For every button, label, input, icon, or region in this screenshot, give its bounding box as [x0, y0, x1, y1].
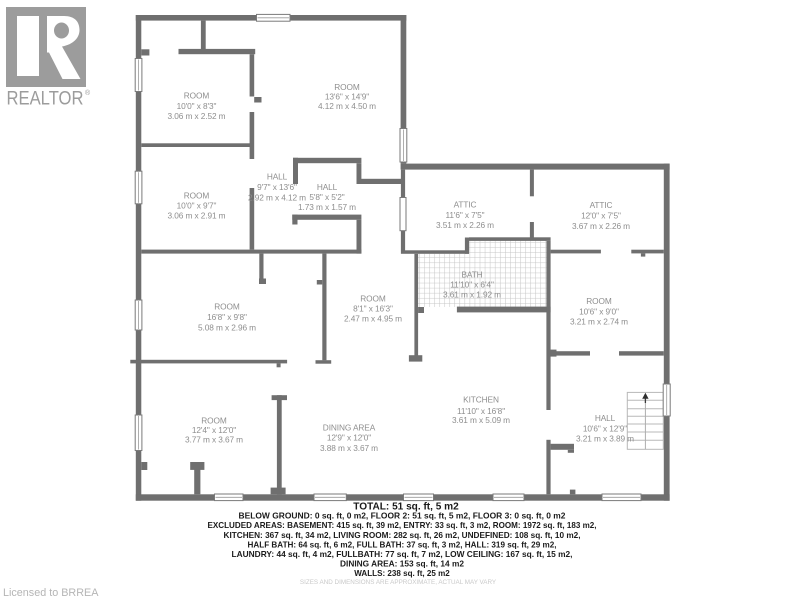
svg-text:ROOM: ROOM: [586, 296, 612, 306]
svg-text:12'4" x 12'0": 12'4" x 12'0": [192, 425, 236, 435]
svg-text:ROOM: ROOM: [360, 294, 386, 304]
svg-text:ROOM: ROOM: [184, 91, 210, 101]
svg-text:KITCHEN: KITCHEN: [463, 395, 499, 405]
svg-text:10'6" x 12'9": 10'6" x 12'9": [583, 424, 627, 434]
svg-text:13'6" x 14'9": 13'6" x 14'9": [325, 92, 369, 102]
svg-text:16'8" x 9'8": 16'8" x 9'8": [207, 312, 247, 322]
svg-text:5'8" x 5'2": 5'8" x 5'2": [309, 192, 344, 202]
svg-text:BATH: BATH: [461, 270, 482, 280]
svg-text:HALF BATH: 64 sq. ft, 6 m2, FU: HALF BATH: 64 sq. ft, 6 m2, FULL BATH: 3…: [248, 539, 557, 549]
svg-text:5.08 m x 2.96 m: 5.08 m x 2.96 m: [198, 323, 256, 333]
svg-text:8'1" x 16'3": 8'1" x 16'3": [353, 304, 393, 314]
svg-text:10'0" x 8'3": 10'0" x 8'3": [177, 101, 217, 111]
svg-text:4.12 m x 4.50 m: 4.12 m x 4.50 m: [318, 101, 376, 111]
svg-text:HALL: HALL: [595, 413, 616, 423]
svg-text:10'6" x 9'0": 10'6" x 9'0": [579, 307, 619, 317]
svg-text:DINING AREA: 153 sq. ft, 14 m2: DINING AREA: 153 sq. ft, 14 m2: [340, 559, 464, 569]
svg-text:EXCLUDED AREAS: BASEMENT: 415: EXCLUDED AREAS: BASEMENT: 415 sq. ft, 39…: [208, 520, 597, 530]
svg-text:SIZES AND DIMENSIONS ARE APPRO: SIZES AND DIMENSIONS ARE APPROXIMATE, AC…: [300, 579, 497, 586]
svg-text:3.77 m x 3.67 m: 3.77 m x 3.67 m: [185, 435, 243, 445]
svg-text:3.06 m x 2.52 m: 3.06 m x 2.52 m: [168, 111, 226, 121]
svg-text:DINING AREA: DINING AREA: [323, 423, 376, 433]
svg-text:ROOM: ROOM: [334, 82, 360, 92]
svg-text:3.51 m x 2.26 m: 3.51 m x 2.26 m: [436, 220, 494, 230]
svg-text:3.06 m x 2.91 m: 3.06 m x 2.91 m: [168, 211, 226, 221]
svg-text:1.73 m x 1.57 m: 1.73 m x 1.57 m: [298, 202, 356, 212]
svg-text:KITCHEN: 367 sq. ft, 34 m2, LI: KITCHEN: 367 sq. ft, 34 m2, LIVING ROOM:…: [224, 530, 581, 540]
svg-text:LAUNDRY: 44 sq. ft, 4 m2, FULL: LAUNDRY: 44 sq. ft, 4 m2, FULLBATH: 77 s…: [232, 549, 573, 559]
svg-text:10'0" x 9'7": 10'0" x 9'7": [177, 201, 217, 211]
svg-text:ATTIC: ATTIC: [590, 200, 613, 210]
svg-text:ROOM: ROOM: [184, 191, 210, 201]
svg-text:3.61 m x 1.92 m: 3.61 m x 1.92 m: [443, 290, 501, 300]
svg-text:11'6" x 7'5": 11'6" x 7'5": [445, 210, 484, 220]
svg-text:BELOW GROUND: 0 sq. ft, 0 m2,: BELOW GROUND: 0 sq. ft, 0 m2, FLOOR 2: 5…: [239, 511, 566, 521]
svg-text:ROOM: ROOM: [201, 416, 227, 426]
svg-text:2.92 m x 4.12 m: 2.92 m x 4.12 m: [248, 193, 306, 203]
svg-text:®: ®: [85, 89, 91, 97]
svg-text:HALL: HALL: [317, 182, 338, 192]
svg-text:3.21 m x 3.89 m: 3.21 m x 3.89 m: [576, 434, 634, 444]
svg-text:3.21 m x 2.74 m: 3.21 m x 2.74 m: [570, 317, 628, 327]
svg-text:HALL: HALL: [267, 172, 288, 182]
svg-text:12'9" x 12'0": 12'9" x 12'0": [327, 433, 371, 443]
svg-text:WALLS: 238 sq. ft, 25 m2: WALLS: 238 sq. ft, 25 m2: [354, 568, 450, 578]
svg-text:11'10" x 6'4": 11'10" x 6'4": [450, 280, 494, 290]
svg-text:9'7" x 13'6": 9'7" x 13'6": [257, 182, 297, 192]
svg-text:ATTIC: ATTIC: [454, 200, 477, 210]
svg-text:2.47 m x 4.95 m: 2.47 m x 4.95 m: [344, 314, 402, 324]
svg-text:REALTOR: REALTOR: [7, 87, 84, 109]
svg-text:Licensed to BRREA: Licensed to BRREA: [3, 587, 99, 599]
svg-text:3.88 m x 3.67 m: 3.88 m x 3.67 m: [320, 443, 378, 453]
svg-text:3.61 m x 5.09 m: 3.61 m x 5.09 m: [452, 415, 510, 425]
svg-text:3.67 m x 2.26 m: 3.67 m x 2.26 m: [572, 221, 630, 231]
svg-text:12'0" x 7'5": 12'0" x 7'5": [581, 211, 621, 221]
svg-text:ROOM: ROOM: [214, 302, 240, 312]
